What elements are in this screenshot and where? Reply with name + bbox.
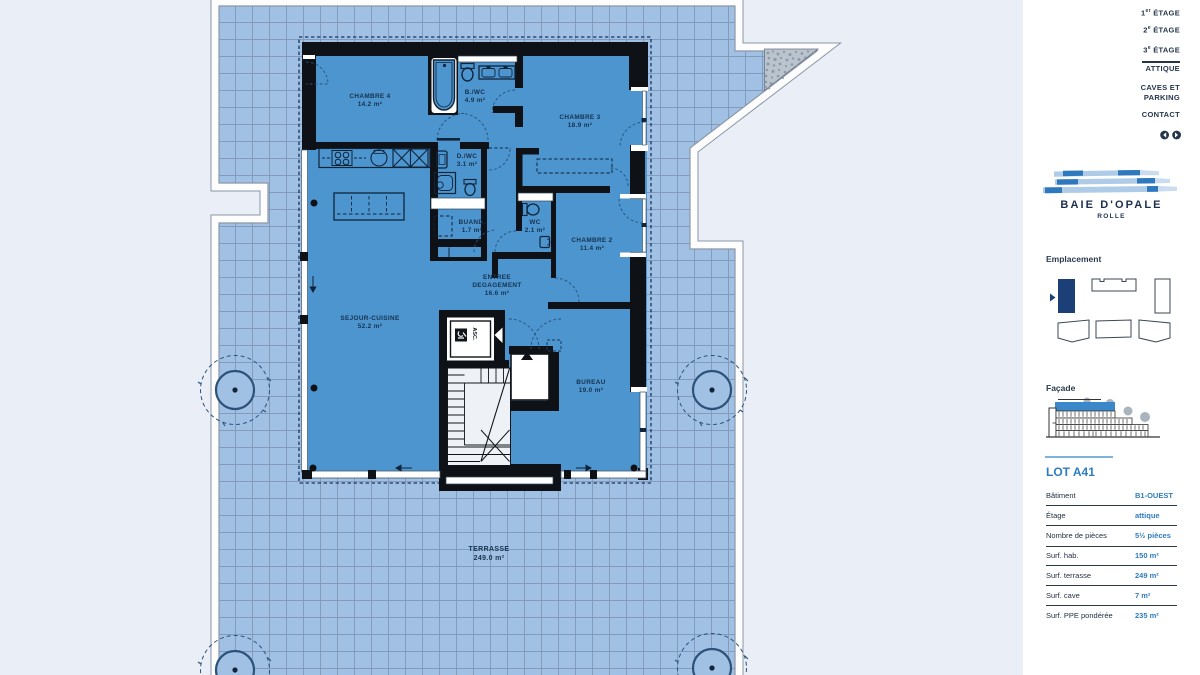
svg-text:BUREAU: BUREAU xyxy=(576,379,605,386)
svg-text:TERRASSE: TERRASSE xyxy=(469,546,510,553)
svg-text:CHAMBRE 3: CHAMBRE 3 xyxy=(559,114,600,121)
svg-text:3.1 m²: 3.1 m² xyxy=(457,161,478,168)
svg-text:D./WC: D./WC xyxy=(457,153,478,160)
svg-text:DEGAGEMENT: DEGAGEMENT xyxy=(472,282,521,289)
svg-text:249.0 m²: 249.0 m² xyxy=(474,555,505,562)
svg-text:ASC.: ASC. xyxy=(471,327,477,341)
svg-text:16.6 m²: 16.6 m² xyxy=(485,290,509,297)
svg-text:2.1 m²: 2.1 m² xyxy=(525,227,546,234)
svg-text:SEJOUR-CUISINE: SEJOUR-CUISINE xyxy=(340,315,400,322)
svg-text:4.9 m²: 4.9 m² xyxy=(465,97,486,104)
svg-text:11.4 m²: 11.4 m² xyxy=(580,245,604,252)
svg-text:CHAMBRE 4: CHAMBRE 4 xyxy=(349,93,390,100)
svg-text:19.0 m²: 19.0 m² xyxy=(579,387,603,394)
svg-text:52.2 m²: 52.2 m² xyxy=(358,323,382,330)
svg-text:CHAMBRE 2: CHAMBRE 2 xyxy=(571,237,612,244)
svg-text:B./WC: B./WC xyxy=(465,89,486,96)
svg-text:18.9 m²: 18.9 m² xyxy=(568,122,592,129)
svg-text:ENTREE: ENTREE xyxy=(483,274,511,281)
svg-text:1.7 m²: 1.7 m² xyxy=(462,227,483,234)
svg-text:BUAND.: BUAND. xyxy=(459,219,486,226)
svg-text:14.2 m²: 14.2 m² xyxy=(358,101,382,108)
svg-text:WC: WC xyxy=(529,219,540,226)
